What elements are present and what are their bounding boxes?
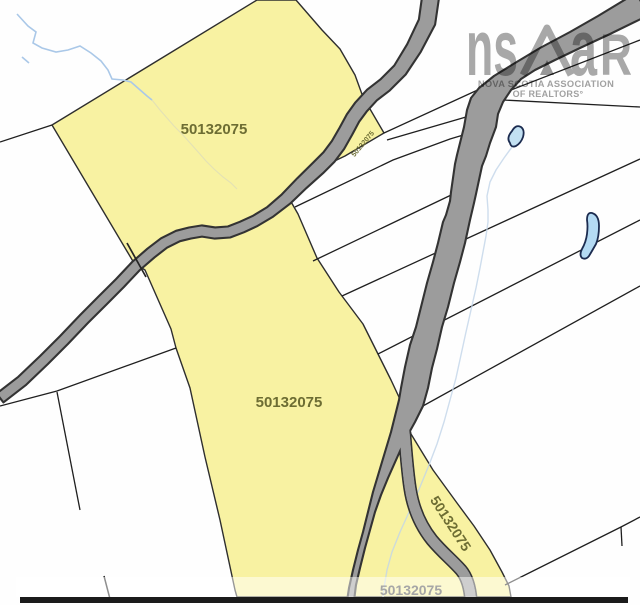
svg-text:50132075: 50132075 [256,394,323,411]
svg-text:NOVA SCOTIA ASSOCIATION: NOVA SCOTIA ASSOCIATION [478,79,614,89]
svg-text:50132075: 50132075 [181,121,248,138]
svg-text:50132075: 50132075 [380,582,443,598]
svg-text:OF REALTORS°: OF REALTORS° [513,89,584,99]
